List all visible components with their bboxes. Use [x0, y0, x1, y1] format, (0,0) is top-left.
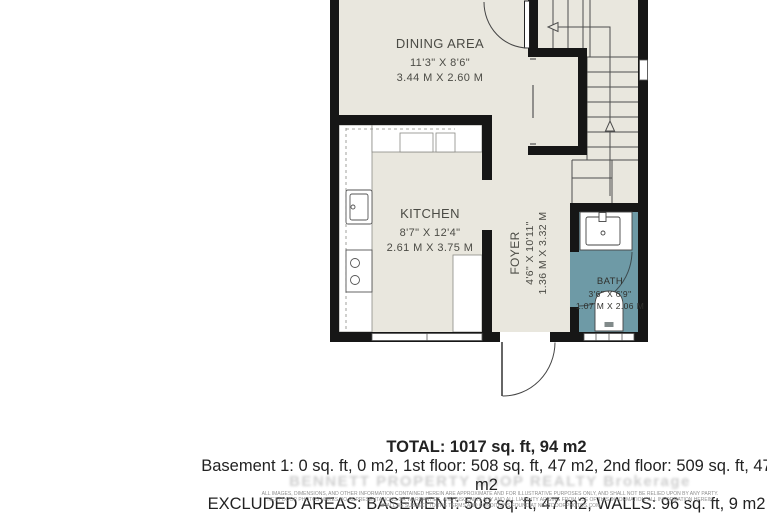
floor-plan: DINING AREA 11'3" X 8'6" 3.44 M X 2.60 M… [322, 0, 648, 432]
disclaimer-line-3: SHALL BE SUBJECT TO THE TERMS AND CONDIT… [210, 503, 767, 509]
kitchen-room-label: KITCHEN 8'7" X 12'4" 2.61 M X 3.75 M [350, 206, 510, 254]
stove-icon [346, 250, 372, 292]
foyer-room-label: FOYER 4'6" X 10'11" 1.36 M X 3.32 M [508, 183, 552, 323]
foyer-dimensions-imperial: 4'6" X 10'11" [524, 183, 536, 323]
dining-name: DINING AREA [360, 36, 520, 51]
foyer-dimensions-metric: 1.36 M X 3.32 M [537, 183, 549, 323]
bath-name: BATH [562, 276, 658, 287]
dining-dimensions-metric: 3.44 M X 2.60 M [360, 72, 520, 84]
floor-areas-text: Basement 1: 0 sq. ft, 0 m2, 1st floor: 5… [200, 457, 767, 495]
kitchen-dimensions-imperial: 8'7" X 12'4" [350, 227, 510, 239]
bath-dimensions-imperial: 3'6" X 6'9" [562, 289, 658, 299]
total-area-text: TOTAL: 1017 sq. ft, 94 m2 [200, 438, 767, 457]
entry-door-arc [503, 343, 556, 397]
dining-dimensions-imperial: 11'3" X 8'6" [360, 57, 520, 69]
disclaimer: ALL IMAGES, DIMENSIONS, AND OTHER INFORM… [210, 491, 767, 510]
bath-dimensions-metric: 1.07 M X 2.06 M [562, 301, 658, 311]
kitchen-name: KITCHEN [350, 206, 510, 221]
kitchen-dimensions-metric: 2.61 M X 3.75 M [350, 242, 510, 254]
dining-room-label: DINING AREA 11'3" X 8'6" 3.44 M X 2.60 M [360, 36, 520, 84]
dining-door-leaf [525, 1, 530, 48]
foyer-name: FOYER [508, 183, 522, 323]
bath-room-label: BATH 3'6" X 6'9" 1.07 M X 2.06 M [562, 276, 658, 311]
